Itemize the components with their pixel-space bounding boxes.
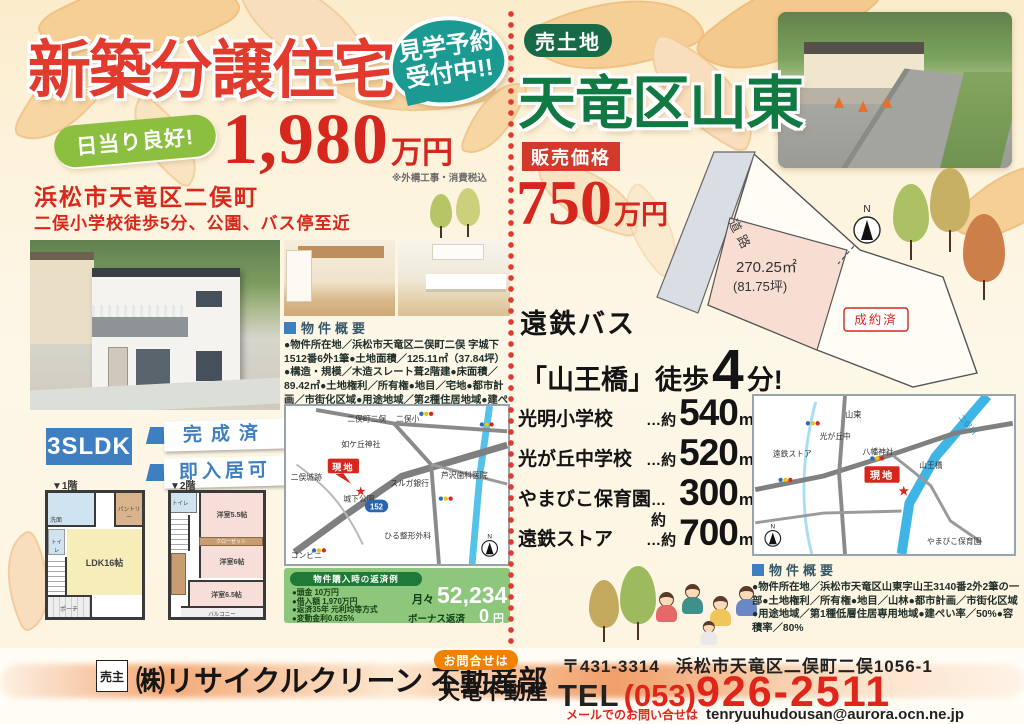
agency-name: 天竜不動産 <box>438 674 548 706</box>
contact-badge: お問合せは <box>434 650 518 670</box>
approx-label: …約 <box>651 492 676 530</box>
compass-icon: N <box>765 524 781 547</box>
map-label-bank: スルガ銀行 <box>390 478 429 488</box>
facility-name: 光が丘中学校 <box>518 444 632 471</box>
river <box>902 396 988 554</box>
map-label-nursery: やまびこ保育園 <box>927 536 982 546</box>
left-price-value: 1,980 <box>222 98 389 181</box>
lot-area: 270.25㎡ <box>736 259 797 276</box>
left-address: 浜松市天竜区二俣町 <box>34 178 259 212</box>
monthly-label: 月々 <box>412 591 434 607</box>
road <box>394 424 439 564</box>
room-toilet: トイレ <box>171 493 197 513</box>
stairs <box>171 515 190 551</box>
left-access-map: 二俣町二俣 二俣小 如ケ丘神社 二俣城跡 城下公園 スルガ銀行 芦沢歯科医院 ひ… <box>284 404 510 566</box>
map-label-castle: 二俣城跡 <box>291 472 322 482</box>
map-label-area: 二俣町二俣 <box>347 415 386 424</box>
facility-name: やまびこ保育園 <box>518 484 651 511</box>
distance-row: やまびこ保育園 …約 300 m <box>518 472 754 512</box>
payment-item: ●変動金利0.625% <box>292 615 378 624</box>
distance-value: 540 <box>679 392 738 434</box>
distance-value: 300 <box>679 472 738 514</box>
tree-icon <box>620 566 656 640</box>
room-washroom: 洗面 <box>48 493 96 527</box>
bonus-value: 0 <box>479 606 489 627</box>
left-address-sub: 二俣小学校徒歩5分、公園、バス停至近 <box>34 209 350 234</box>
closet <box>171 553 186 595</box>
monthly-value: 52,234 <box>437 582 507 609</box>
map-label-school: 二俣小 <box>396 415 420 424</box>
svg-text:N: N <box>863 204 870 215</box>
site-star-icon: ★ <box>355 485 366 499</box>
compass-icon: N <box>854 204 880 243</box>
map-label-school: 光が丘中 <box>820 431 851 441</box>
map-label-area: 山東 <box>845 409 862 419</box>
right-overview-title: 物件概要 <box>769 560 837 579</box>
route-number: 152 <box>370 502 384 511</box>
facility-name: 光明小学校 <box>518 404 613 431</box>
map-label-clinic: ひる整形外科 <box>384 531 431 541</box>
site-flag-label: 現地 <box>870 469 894 482</box>
room-ldk: LDK16帖 <box>67 529 142 595</box>
map-label-convenience: コンビニ <box>291 551 322 560</box>
compass-icon: N <box>482 534 498 557</box>
road <box>755 511 901 523</box>
lot-tsubo: (81.75坪) <box>733 279 787 294</box>
distance-row: 遠鉄ストア …約 700 m <box>518 512 754 552</box>
approx-label: …約 <box>646 409 676 430</box>
room-western-3: 洋室6.5帖 <box>188 580 263 608</box>
stairs <box>48 557 67 595</box>
blue-square-icon <box>284 322 296 334</box>
tree-icon <box>430 194 452 238</box>
footer: 売主 ㈱リサイクルクリーン 不動産部 お問合せは 天竜不動産 〒431-3314… <box>0 648 1024 724</box>
map-label-shrine: 如ケ丘神社 <box>341 439 380 449</box>
road <box>839 396 845 554</box>
house-exterior-photo <box>30 240 280 410</box>
land-site-photo <box>778 12 1012 168</box>
svg-text:N: N <box>487 534 492 541</box>
payment-bonus: ボーナス返済 0 円 <box>408 606 504 627</box>
right-price: 750 万円 <box>516 166 668 240</box>
closet: クローゼット <box>199 537 263 546</box>
facility-name: 遠鉄ストア <box>518 524 613 551</box>
layout-badge: 3SLDK <box>46 428 132 465</box>
approx-label: …約 <box>646 529 676 550</box>
distance-row: 光明小学校 …約 540 m <box>518 392 754 432</box>
left-overview-title: 物件概要 <box>301 318 369 337</box>
right-price-value: 750 <box>516 166 612 240</box>
room-western-2: 洋室6帖 <box>199 546 263 578</box>
distance-row: 光が丘中学校 …約 520 m <box>518 432 754 472</box>
payment-title: 物件購入時の返済例 <box>290 572 422 586</box>
floorplan-2f: トイレ 洋室5.5帖 クローゼット 洋室6帖 洋室6.5帖 バルコニー <box>168 490 266 620</box>
land-sale-badge: 売土地 <box>524 24 612 57</box>
blue-square-icon <box>752 564 764 576</box>
center-dotted-divider <box>508 10 514 646</box>
tree-icon <box>963 214 1005 300</box>
interior-photo-room <box>284 240 395 316</box>
porch: ポーチ <box>48 595 92 617</box>
seller-label-box: 売主 <box>96 660 128 692</box>
tree-icon <box>456 188 480 237</box>
email-line: メールでのお問い合せは tenryuuhudousan@aurora.ocn.n… <box>566 706 964 723</box>
bus-line-name: 遠鉄バス <box>520 302 783 341</box>
site-flag-tail <box>336 473 352 484</box>
map-label-bridge: 山王橋 <box>919 460 943 470</box>
right-property-overview: 物件概要 ●物件所在地／浜松市天竜区山東字山王3140番2外2筆の一部●土地権利… <box>752 560 1020 636</box>
left-price-unit: 万円 <box>391 127 453 172</box>
approx-label: …約 <box>646 449 676 470</box>
right-headline: 天竜区山東 <box>518 56 803 140</box>
bonus-label: ボーナス返済 <box>408 611 465 625</box>
right-overview-body: ●物件所在地／浜松市天竜区山東字山王3140番2外2筆の一部●土地権利／所有権●… <box>752 581 1020 636</box>
bus-access: 遠鉄バス 「山王橋」徒歩 4 分! <box>520 302 783 397</box>
status-completed: 完成済 <box>164 418 287 451</box>
distance-value: 700 <box>679 512 738 554</box>
bonus-unit: 円 <box>493 610 504 626</box>
email-address: tenryuuhudousan@aurora.ocn.ne.jp <box>706 706 964 723</box>
payment-items: ●頭金 10万円 ●借入額 1,970万円 ●返済35年 元利均等方式 ●変動金… <box>292 589 378 624</box>
payment-example-box: 物件購入時の返済例 ●頭金 10万円 ●借入額 1,970万円 ●返済35年 元… <box>284 568 510 623</box>
right-price-unit: 万円 <box>614 193 668 232</box>
room-western-1: 洋室5.5帖 <box>199 493 263 537</box>
svg-text:N: N <box>771 524 776 531</box>
map-label-store: 遠鉄ストア <box>773 448 812 458</box>
distance-list: 光明小学校 …約 540 m 光が丘中学校 …約 520 m やまびこ保育園 …… <box>518 392 754 552</box>
sold-label: 成約済 <box>854 312 898 327</box>
tree-icon <box>589 580 619 642</box>
room-pantry: パントリー <box>114 493 142 527</box>
balcony: バルコニー <box>181 606 263 617</box>
real-estate-flyer: 新築分譲住宅 見学予約 受付中!! 日当り良好! 1,980 万円 ※外構工事・… <box>0 0 1024 724</box>
room-toilet: トイレ <box>48 529 65 555</box>
map-label-dental: 芦沢歯科医院 <box>441 470 488 480</box>
map-label-shrine: 八幡神社 <box>863 447 894 457</box>
left-price-note: ※外構工事・消費税込 <box>392 170 487 184</box>
site-star-icon: ★ <box>898 483 910 498</box>
site-flag-label: 現地 <box>332 461 354 472</box>
payment-monthly: 月々 52,234 円 <box>412 582 521 609</box>
interior-photo-kitchen <box>398 240 510 316</box>
email-label: メールでのお問い合せは <box>566 706 698 723</box>
tree-icon <box>893 184 929 260</box>
floorplan-1f: 洗面 パントリー トイレ LDK16帖 ポーチ <box>45 490 145 620</box>
distance-value: 520 <box>679 432 738 474</box>
right-access-map: 山東 光が丘中 遠鉄ストア 八幡神社 山王橋 やまびこ保育園 二俣川 現地 ★ … <box>752 394 1016 556</box>
bus-minutes: 4 <box>712 345 744 396</box>
